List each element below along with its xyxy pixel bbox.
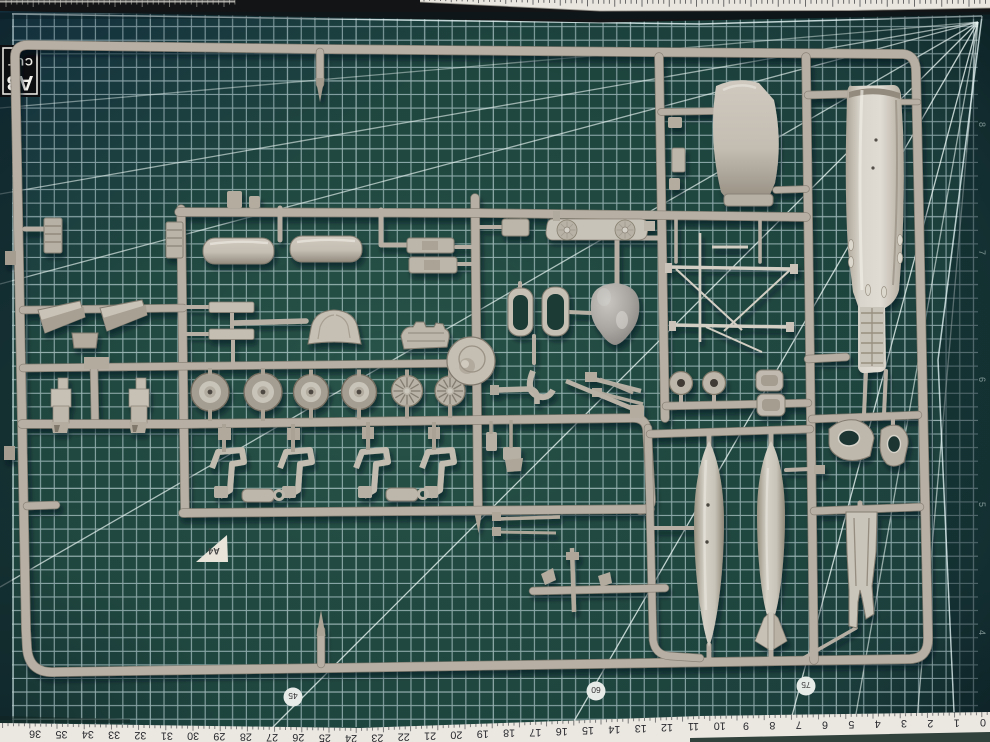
svg-text:19: 19	[477, 728, 489, 740]
svg-text:35: 35	[55, 728, 67, 740]
svg-text:18: 18	[503, 727, 515, 739]
svg-text:3: 3	[901, 717, 907, 729]
svg-text:5: 5	[848, 718, 854, 730]
svg-text:13: 13	[635, 722, 647, 734]
svg-text:7: 7	[796, 719, 802, 731]
svg-text:8: 8	[977, 122, 987, 127]
svg-text:7: 7	[977, 250, 987, 255]
svg-text:17: 17	[529, 726, 541, 738]
svg-text:33: 33	[108, 729, 120, 741]
svg-text:2: 2	[927, 717, 933, 729]
svg-text:20: 20	[450, 729, 462, 741]
svg-text:23: 23	[371, 731, 383, 742]
svg-text:9: 9	[743, 719, 749, 731]
svg-text:32: 32	[134, 729, 146, 741]
svg-text:4: 4	[875, 718, 881, 730]
svg-text:16: 16	[556, 725, 568, 737]
svg-text:21: 21	[424, 730, 436, 742]
svg-text:15: 15	[582, 724, 594, 736]
svg-text:31: 31	[161, 729, 173, 741]
svg-text:4: 4	[977, 630, 987, 635]
svg-text:45: 45	[288, 691, 298, 701]
svg-text:34: 34	[82, 728, 94, 740]
svg-text:30: 30	[187, 730, 199, 742]
svg-text:25: 25	[319, 732, 331, 742]
svg-text:0: 0	[980, 716, 986, 728]
svg-text:6: 6	[822, 718, 828, 730]
svg-text:26: 26	[292, 731, 304, 742]
svg-text:29: 29	[213, 730, 225, 742]
svg-text:22: 22	[398, 731, 410, 742]
svg-text:1: 1	[954, 717, 960, 729]
svg-text:27: 27	[266, 731, 278, 742]
svg-text:36: 36	[29, 728, 41, 740]
svg-text:6: 6	[977, 377, 987, 382]
svg-text:28: 28	[240, 730, 252, 742]
svg-text:11: 11	[688, 720, 699, 732]
svg-text:5: 5	[977, 502, 987, 507]
svg-text:75: 75	[801, 680, 811, 690]
svg-text:60: 60	[591, 685, 601, 695]
svg-text:12: 12	[661, 721, 673, 733]
svg-text:8: 8	[769, 719, 775, 731]
svg-text:14: 14	[608, 723, 620, 735]
svg-text:24: 24	[345, 732, 357, 742]
svg-text:A4: A4	[208, 546, 220, 556]
svg-text:10: 10	[714, 720, 726, 732]
